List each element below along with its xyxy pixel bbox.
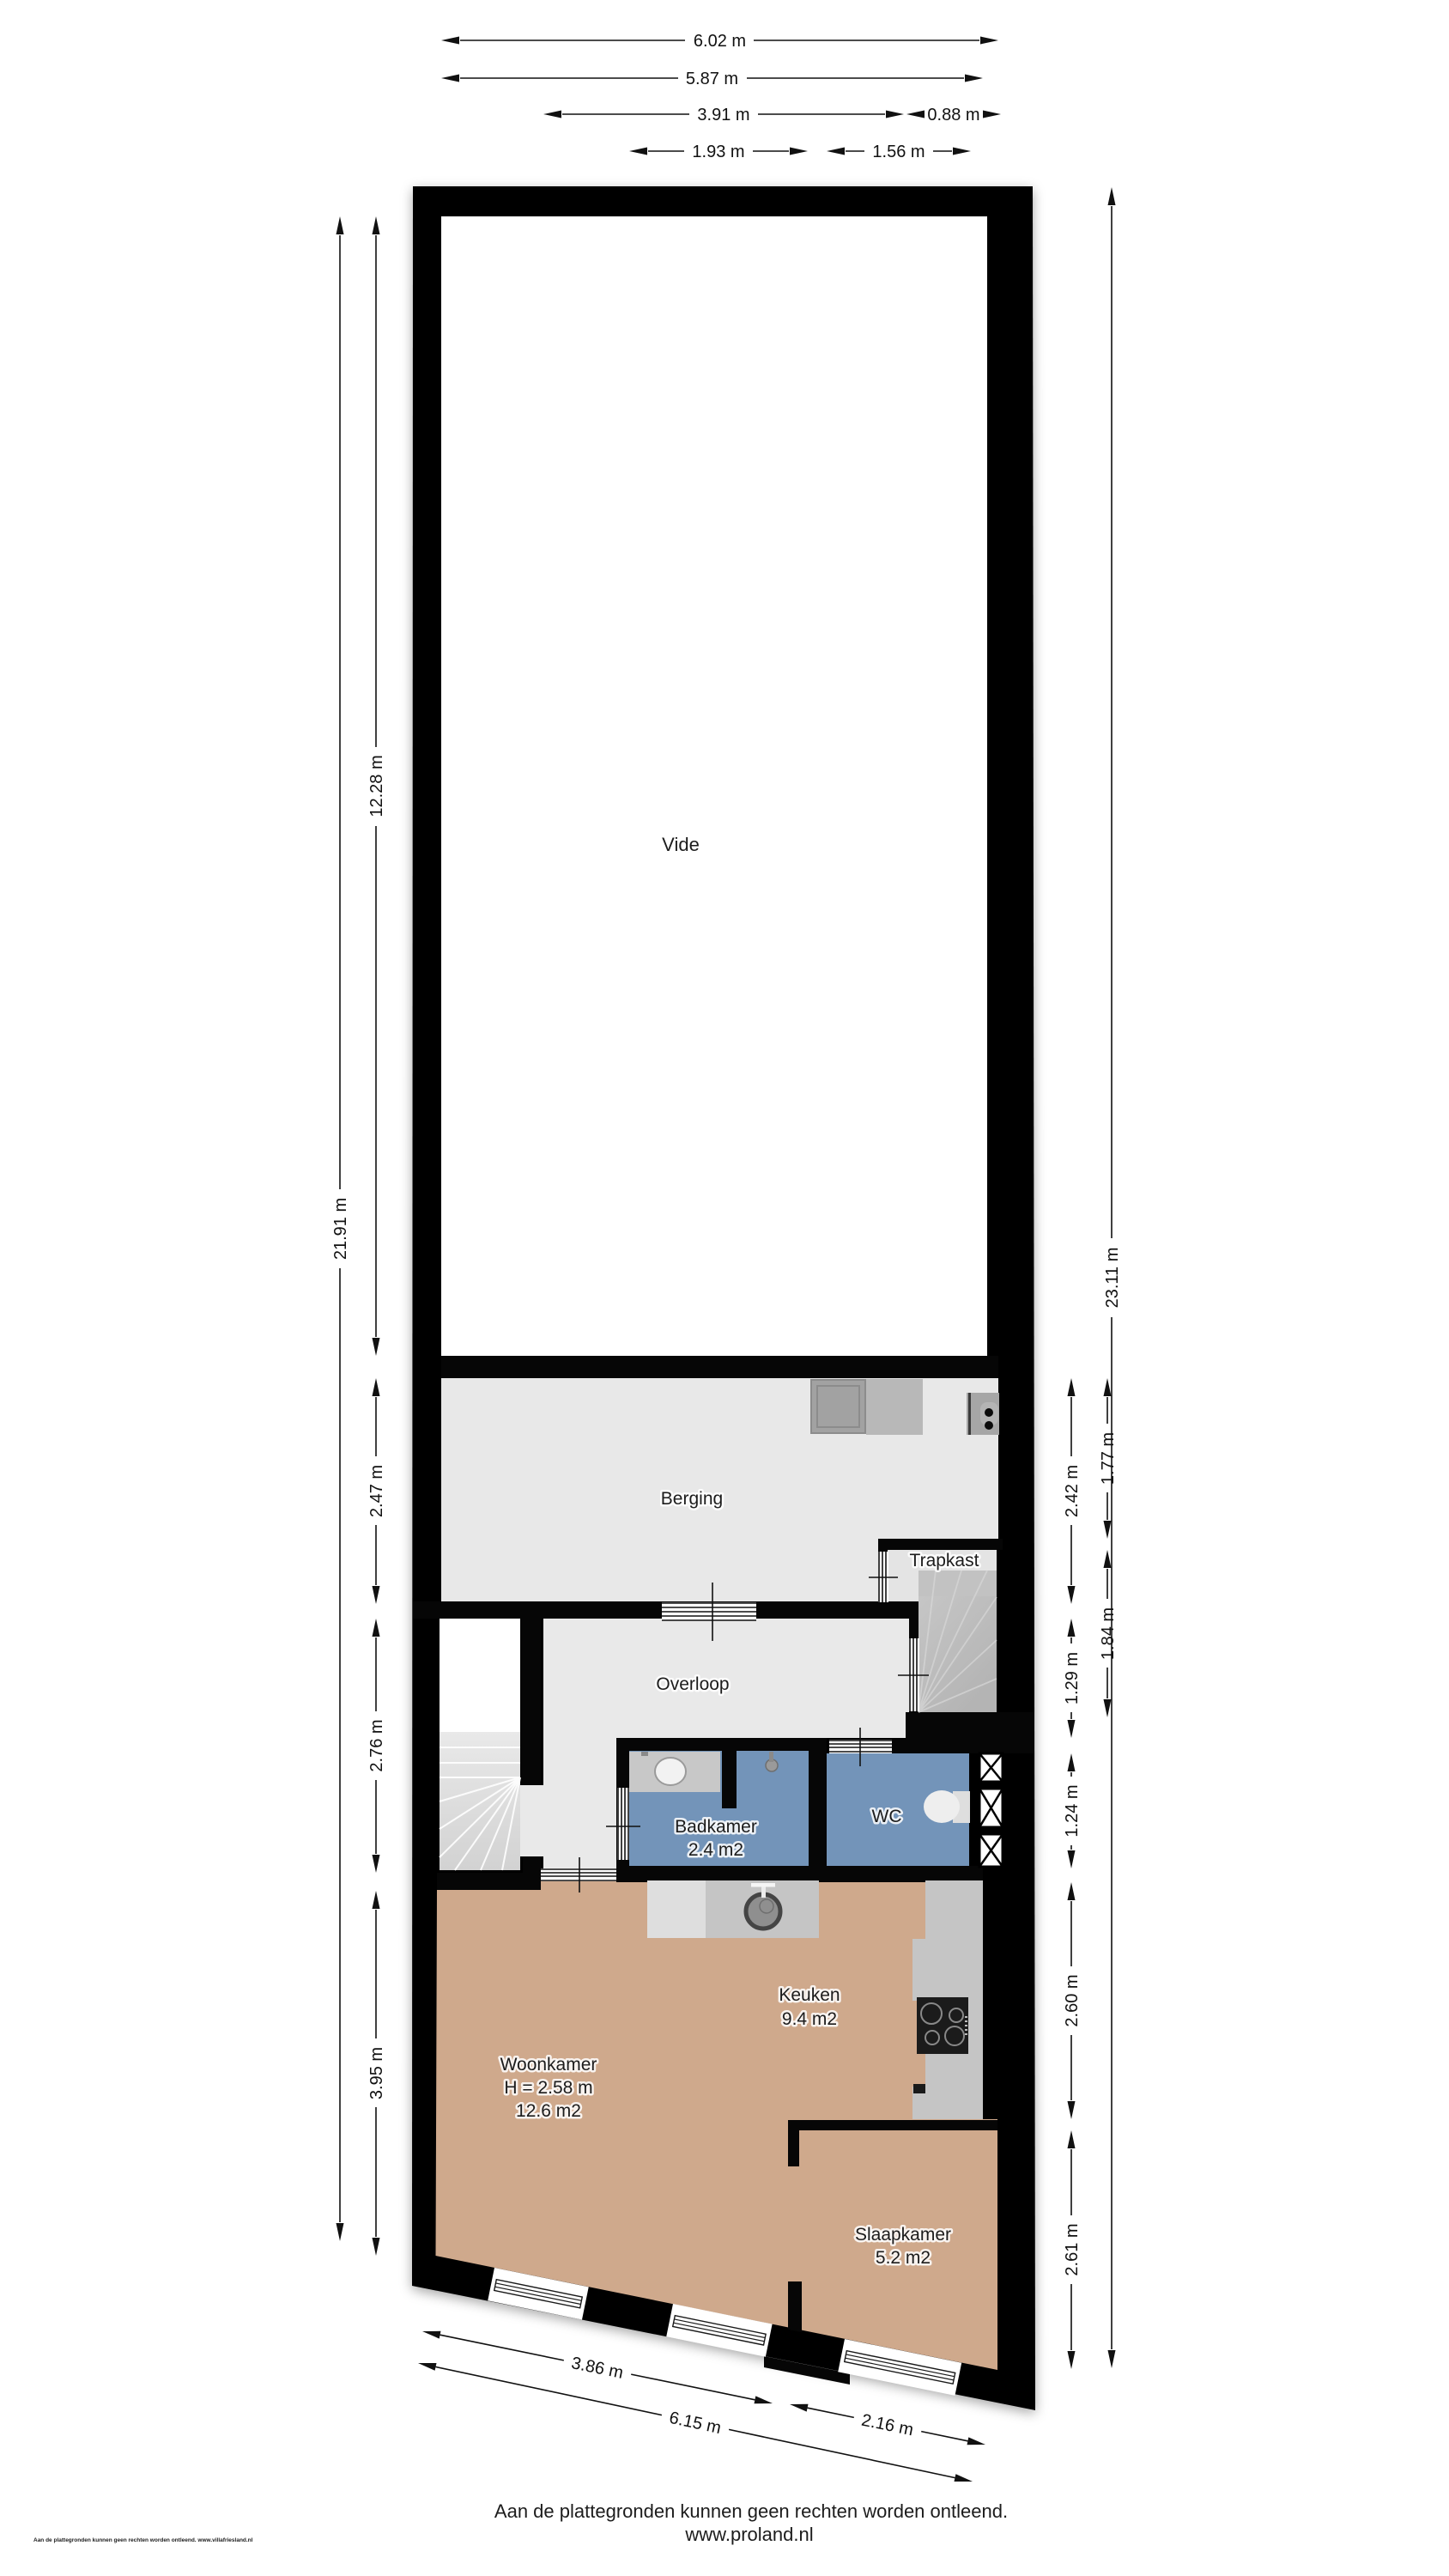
svg-text:5.87 m: 5.87 m (686, 70, 738, 88)
svg-text:WC: WC (872, 1807, 902, 1826)
svg-text:1.56 m: 1.56 m (872, 143, 925, 161)
svg-text:1.77 m: 1.77 m (1099, 1432, 1118, 1485)
svg-text:2.4 m2: 2.4 m2 (688, 1840, 743, 1860)
svg-text:Woonkamer: Woonkamer (500, 2055, 597, 2075)
svg-text:Overloop: Overloop (656, 1674, 729, 1694)
svg-text:Badkamer: Badkamer (675, 1817, 757, 1837)
svg-text:2.61 m: 2.61 m (1063, 2223, 1082, 2275)
svg-text:3.91 m: 3.91 m (697, 106, 749, 125)
svg-text:Slaapkamer: Slaapkamer (855, 2225, 951, 2245)
svg-text:21.91 m: 21.91 m (331, 1198, 350, 1260)
svg-text:12.28 m: 12.28 m (367, 755, 386, 817)
svg-text:6.02 m: 6.02 m (694, 32, 746, 51)
svg-text:Aan de plattegronden kunnen ge: Aan de plattegronden kunnen geen rechten… (33, 2537, 253, 2543)
svg-text:9.4 m2: 9.4 m2 (782, 2009, 837, 2029)
svg-text:1.29 m: 1.29 m (1063, 1652, 1082, 1704)
svg-text:5.2 m2: 5.2 m2 (876, 2248, 931, 2268)
svg-text:Trapkast: Trapkast (910, 1551, 979, 1571)
svg-text:1.24 m: 1.24 m (1063, 1784, 1082, 1837)
svg-text:3.95 m: 3.95 m (367, 2047, 386, 2099)
svg-text:23.11 m: 23.11 m (1103, 1248, 1122, 1309)
svg-text:2.60 m: 2.60 m (1063, 1974, 1082, 2026)
svg-text:0.88 m: 0.88 m (927, 106, 979, 125)
svg-text:Aan de plattegronden kunnen ge: Aan de plattegronden kunnen geen rechten… (494, 2500, 1008, 2522)
svg-text:1.84 m: 1.84 m (1099, 1607, 1118, 1660)
svg-text:2.76 m: 2.76 m (367, 1719, 386, 1771)
svg-text:2.47 m: 2.47 m (367, 1465, 386, 1517)
svg-text:Keuken: Keuken (779, 1985, 840, 2005)
svg-text:2.42 m: 2.42 m (1063, 1465, 1082, 1517)
svg-text:www.proland.nl: www.proland.nl (684, 2524, 813, 2545)
svg-text:1.93 m: 1.93 m (692, 143, 744, 161)
svg-text:Vide: Vide (662, 834, 700, 855)
svg-text:Berging: Berging (661, 1489, 723, 1509)
svg-text:12.6 m2: 12.6 m2 (516, 2101, 581, 2121)
svg-text:H = 2.58 m: H = 2.58 m (504, 2078, 592, 2098)
